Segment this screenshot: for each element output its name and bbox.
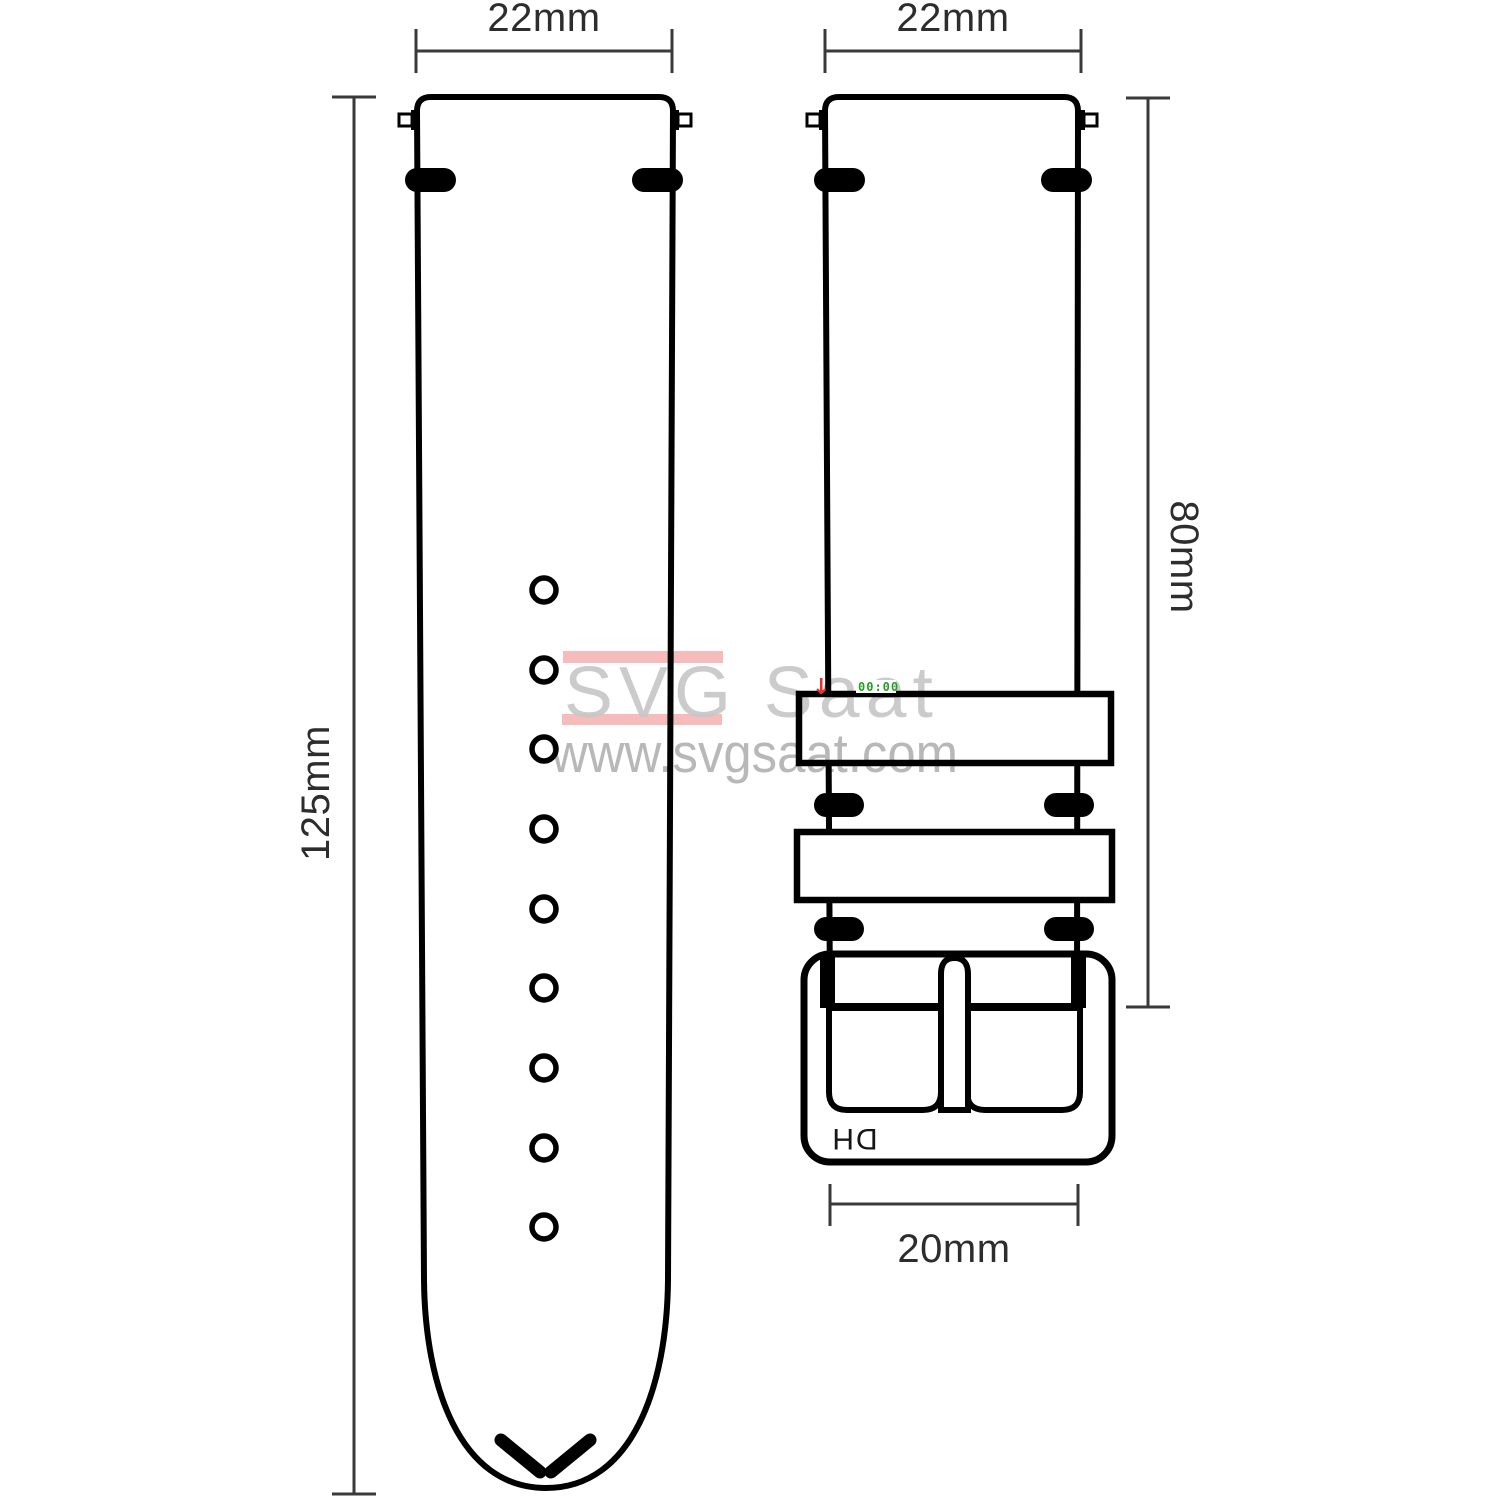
red-arrow-artifact: ↓ bbox=[812, 675, 830, 700]
stitch-bar bbox=[814, 917, 864, 941]
stitch-bar bbox=[1044, 917, 1094, 941]
diagram-canvas: 22mm 22mm 125mm 80mm 20mm bbox=[0, 0, 1500, 1500]
buckle-window-right bbox=[967, 1008, 1080, 1110]
springbar-nub bbox=[411, 110, 419, 130]
stitch-bar bbox=[1044, 793, 1094, 817]
strap-end-edge bbox=[1071, 952, 1086, 1008]
buckle: DH bbox=[804, 952, 1112, 1162]
stitch-bar bbox=[405, 168, 456, 192]
label-long-strap-width: 22mm bbox=[487, 0, 600, 40]
label-short-strap-width: 22mm bbox=[896, 0, 1009, 40]
strap-end-edge bbox=[820, 952, 835, 1008]
strap-hole bbox=[532, 1056, 556, 1080]
short-strap: DH bbox=[797, 97, 1112, 1162]
springbar-pin-icon bbox=[1084, 114, 1097, 126]
stitch-bar bbox=[1041, 168, 1092, 192]
stitch-bar bbox=[814, 168, 865, 192]
buckle-logo-text: DH bbox=[830, 1122, 877, 1155]
label-short-strap-length: 80mm bbox=[1162, 500, 1206, 613]
strap-hole bbox=[532, 976, 556, 1000]
springbar-nub bbox=[819, 110, 827, 130]
long-strap-outline bbox=[417, 97, 673, 1488]
watermark-url-text: www.svgsaat.com bbox=[550, 722, 958, 784]
buckle-window-left bbox=[829, 1008, 941, 1110]
springbar-pin-icon bbox=[807, 114, 820, 126]
springbar-nub bbox=[671, 110, 679, 130]
springbar-pin-icon bbox=[399, 114, 412, 126]
strap-hole bbox=[532, 1136, 556, 1160]
springbar-pin-icon bbox=[678, 114, 691, 126]
label-long-strap-length: 125mm bbox=[294, 725, 338, 861]
strap-hole bbox=[532, 817, 556, 841]
springbar-nub bbox=[1077, 110, 1085, 130]
keeper-loop-lower bbox=[797, 832, 1112, 900]
stitch-bar bbox=[814, 793, 864, 817]
buckle-prong bbox=[941, 958, 968, 1110]
label-buckle-width: 20mm bbox=[897, 1227, 1010, 1271]
watch-strap-technical-diagram: 22mm 22mm 125mm 80mm 20mm bbox=[0, 0, 1500, 1500]
strap-hole bbox=[532, 1215, 556, 1239]
stitch-bar bbox=[632, 168, 683, 192]
watermark: SVG Saat www.svgsaat.com bbox=[550, 651, 958, 784]
strap-hole bbox=[532, 658, 556, 682]
green-counter-artifact: 00:00 bbox=[858, 680, 899, 694]
long-strap bbox=[399, 97, 691, 1488]
strap-hole bbox=[532, 897, 556, 921]
strap-hole bbox=[532, 578, 556, 602]
